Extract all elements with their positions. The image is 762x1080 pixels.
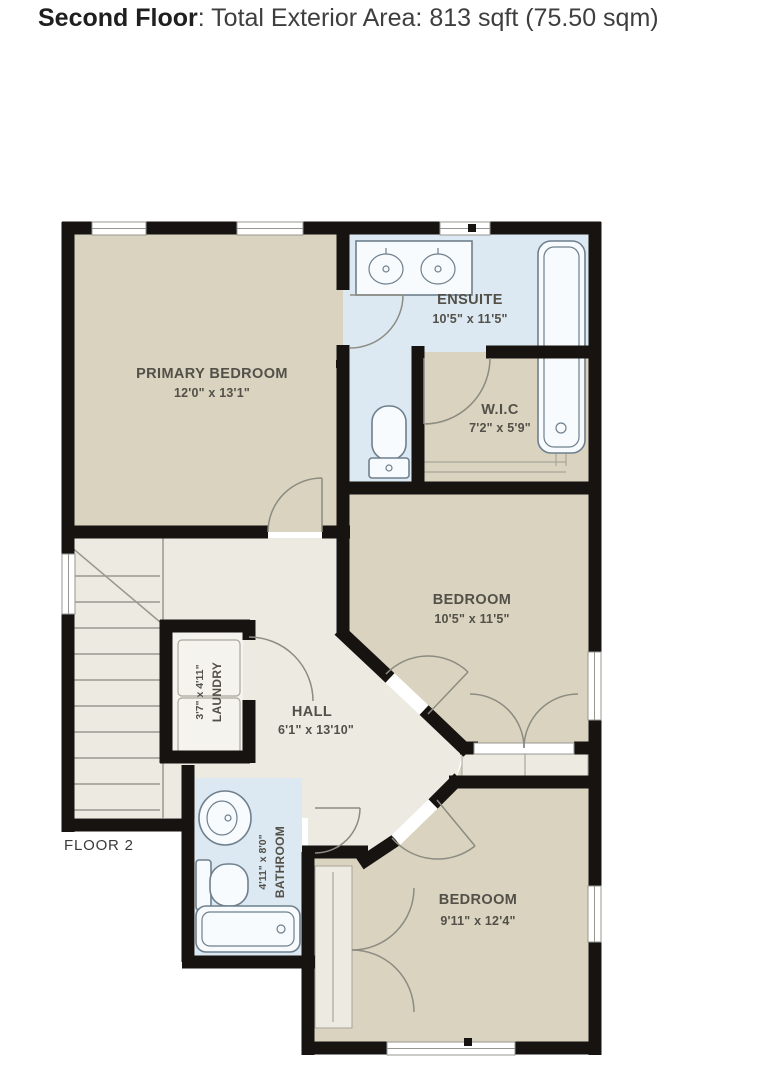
ensuite-label: ENSUITE <box>437 292 503 308</box>
hall-label: HALL <box>292 704 332 720</box>
bathroom-dims: 4'11" x 8'0" <box>257 834 269 889</box>
bedroom-mid-dims: 10'5" x 11'5" <box>434 612 509 626</box>
ensuite-vanity <box>356 241 472 295</box>
window <box>387 1042 515 1055</box>
hall-dims: 6'1" x 13'10" <box>278 723 354 737</box>
ensuite-dims: 10'5" x 11'5" <box>432 312 507 326</box>
primary-bedroom-dims: 12'0" x 13'1" <box>174 386 250 400</box>
bathroom-bathtub <box>196 906 300 952</box>
floor-plan-svg: PRIMARY BEDROOM 12'0" x 13'1" ENSUITE 10… <box>0 0 762 1080</box>
wic-label: W.I.C <box>481 402 519 418</box>
floor-label: FLOOR 2 <box>64 837 134 854</box>
wic-dims: 7'2" x 5'9" <box>469 421 531 435</box>
window <box>440 222 490 235</box>
bedroom-mid-label: BEDROOM <box>433 592 512 608</box>
floor-plan-page: Second Floor: Total Exterior Area: 813 s… <box>0 0 762 1080</box>
bedroom-bottom-label: BEDROOM <box>439 892 518 908</box>
laundry-floor <box>172 632 243 757</box>
ensuite-toilet <box>369 406 409 478</box>
bathroom-label: BATHROOM <box>273 826 287 898</box>
laundry-dims: 3'7" x 4'11" <box>194 664 206 719</box>
bathroom-sink <box>199 791 251 845</box>
window <box>588 652 601 720</box>
primary-bedroom-label: PRIMARY BEDROOM <box>136 366 288 382</box>
window <box>237 222 303 235</box>
window <box>588 886 601 942</box>
bedroom-bottom-dims: 9'11" x 12'4" <box>440 914 515 928</box>
bathroom-toilet <box>196 860 248 910</box>
laundry-label: LAUNDRY <box>210 662 224 722</box>
window <box>62 554 75 614</box>
window <box>92 222 146 235</box>
